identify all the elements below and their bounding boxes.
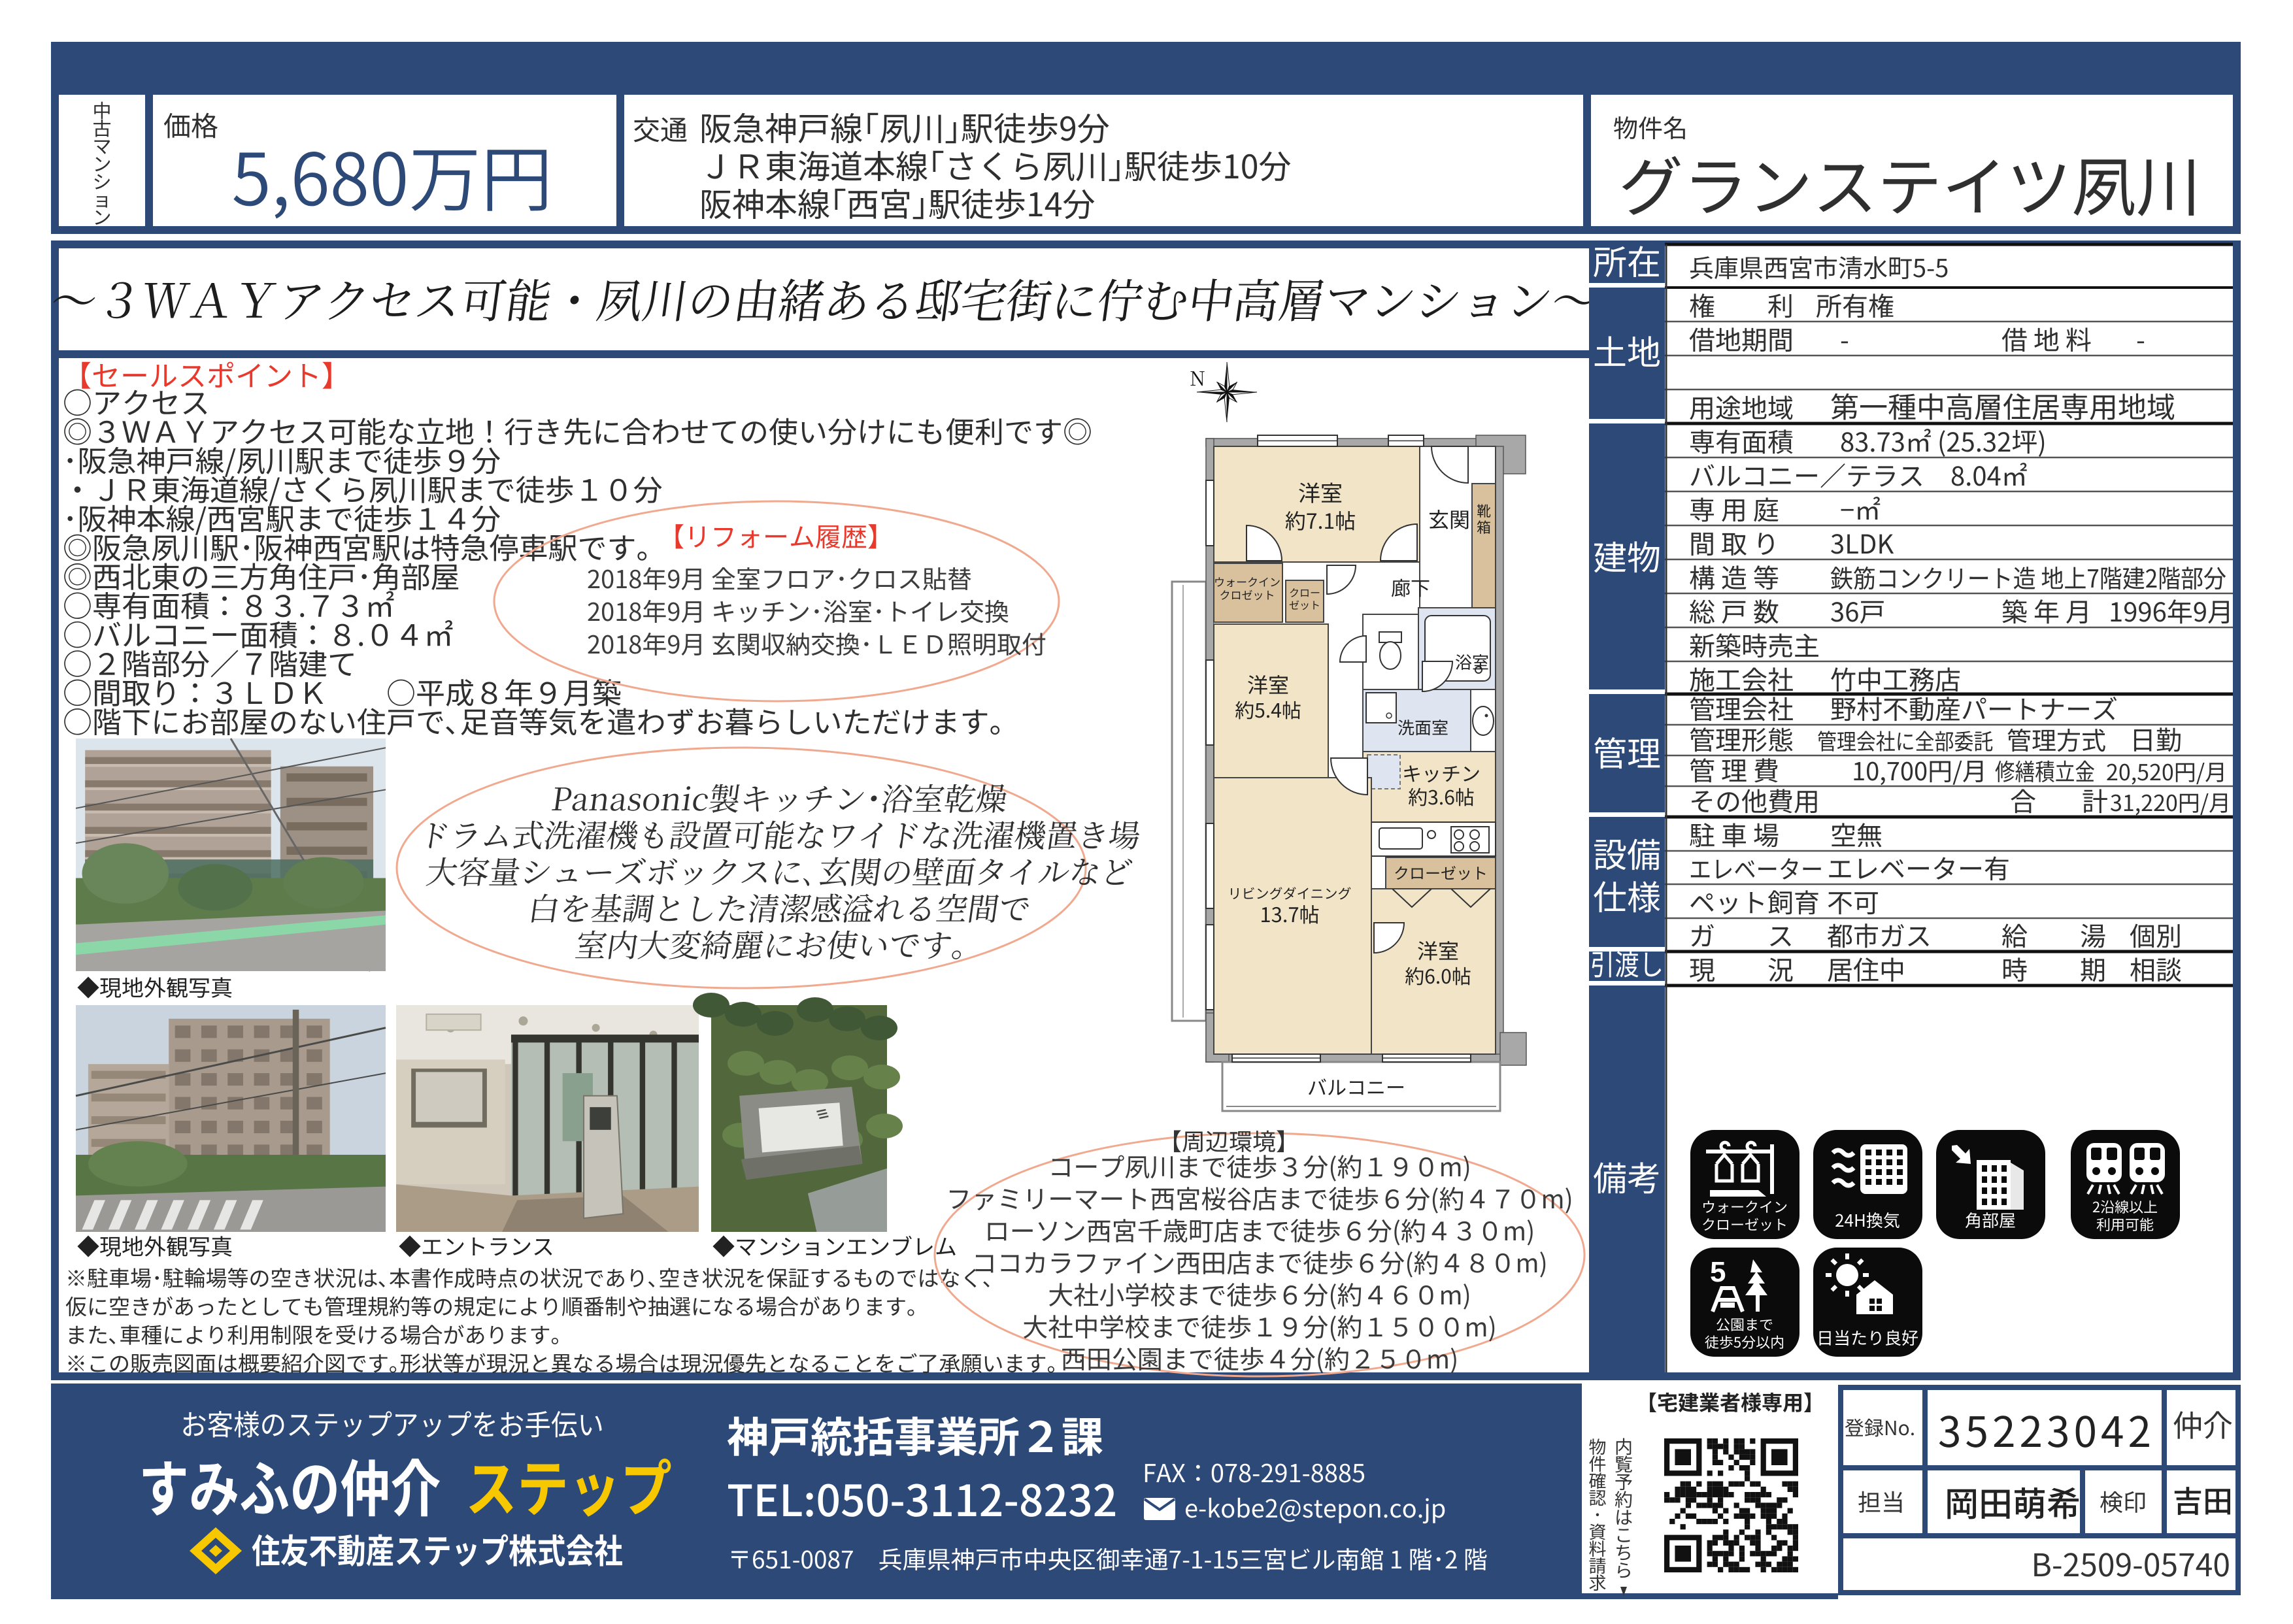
svg-text:5: 5 <box>1710 1256 1726 1288</box>
